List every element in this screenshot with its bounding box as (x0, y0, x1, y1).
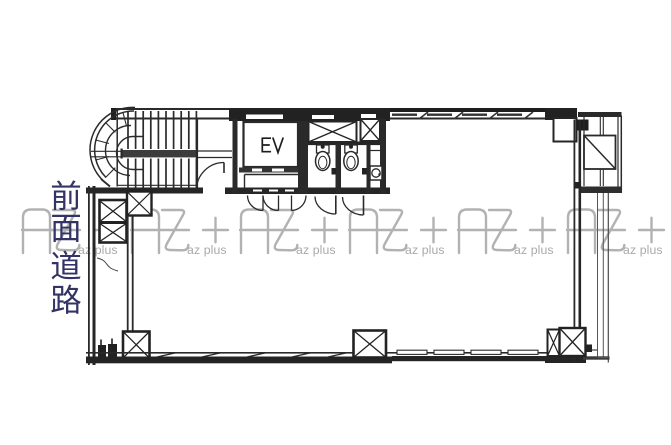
svg-text:面: 面 (50, 210, 82, 246)
svg-text:路: 路 (50, 282, 82, 318)
svg-text:前: 前 (50, 178, 82, 214)
svg-text:道: 道 (50, 248, 82, 284)
